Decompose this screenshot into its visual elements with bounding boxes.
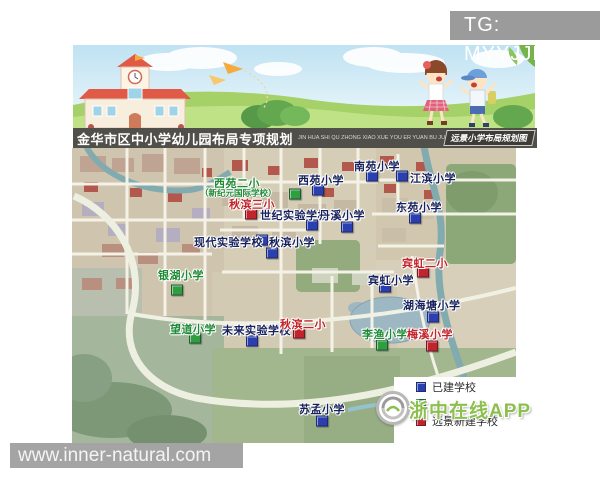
school-label: 宾虹小学 xyxy=(368,272,414,288)
school-label: 梅溪小学 xyxy=(407,326,453,342)
school-label: 江滨小学 xyxy=(410,170,456,186)
app-logo-icon xyxy=(376,391,410,425)
legend-label: 已建学校 xyxy=(432,379,476,395)
tg-watermark: TG: MYYJJPP xyxy=(450,11,600,40)
school-label: 丹溪小学 xyxy=(319,207,365,223)
school-marker xyxy=(289,189,301,200)
school-marker xyxy=(316,416,328,427)
school-marker xyxy=(341,222,353,233)
school-label: 南苑小学 xyxy=(354,158,400,174)
legend-swatch-existing xyxy=(416,382,426,392)
school-label: 秋滨小学 xyxy=(269,234,315,250)
title-bar: 金华市区中小学幼儿园布局专项规划 JIN HUA SHI QU ZHONG XI… xyxy=(73,128,537,148)
page-title: 金华市区中小学幼儿园布局专项规划 xyxy=(77,129,293,148)
page-title-pinyin: JIN HUA SHI QU ZHONG XIAO XUE YOU ER YUA… xyxy=(298,135,445,141)
school-label: 现代实验学校 xyxy=(194,234,263,250)
app-watermark: 浙中在线APP xyxy=(409,396,531,423)
school-label: 李渔小学 xyxy=(362,326,408,342)
school-label: 东苑小学 xyxy=(396,199,442,215)
site-watermark: www.inner-natural.com xyxy=(10,443,243,468)
school-label: 宾虹二小 xyxy=(402,255,448,271)
school-label: 望道小学 xyxy=(170,321,216,337)
school-marker xyxy=(396,171,408,182)
map-corner-label: 远景小学布局规划图 xyxy=(444,130,536,146)
school-marker xyxy=(171,285,183,296)
school-label: 秋滨二小 xyxy=(280,316,326,332)
school-label: 银湖小学 xyxy=(158,267,204,283)
school-label: 西苑小学 xyxy=(298,172,344,188)
school-label: 苏孟小学 xyxy=(299,401,345,417)
page: TG: MYYJJPP xyxy=(0,0,600,480)
school-marker xyxy=(426,341,438,352)
school-marker xyxy=(427,312,439,323)
legend-row: 已建学校 xyxy=(416,380,498,394)
school-label: 湖海塘小学 xyxy=(403,297,461,313)
